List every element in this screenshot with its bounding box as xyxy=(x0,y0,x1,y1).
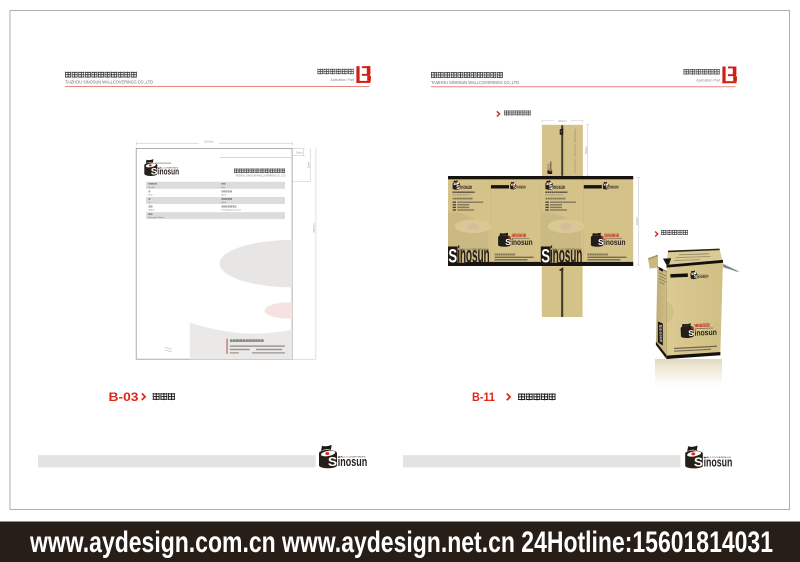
svg-text:inosun: inosun xyxy=(550,242,582,268)
svg-text:285mm: 285mm xyxy=(312,223,316,233)
svg-text:www.aydesign.com.cn www.aydesi: www.aydesign.com.cn www.aydesign.net.cn … xyxy=(29,526,773,559)
svg-text:200mm: 200mm xyxy=(558,119,567,123)
svg-text:10mm: 10mm xyxy=(296,153,302,155)
svg-text:inosun: inosun xyxy=(457,242,489,268)
svg-text:Sinosun: Sinosun xyxy=(658,324,664,343)
svg-text:Fax No: Fax No xyxy=(148,187,154,189)
svg-text:S: S xyxy=(448,246,457,267)
svg-text:Message To Read: Message To Read xyxy=(148,217,163,219)
svg-text:B-11: B-11 xyxy=(472,390,495,404)
svg-text:To: To xyxy=(148,202,150,204)
svg-text:Date: Date xyxy=(221,186,225,189)
svg-text:S: S xyxy=(541,246,550,267)
svg-text:Name: Name xyxy=(221,194,226,196)
svg-text:TAIZHOU SINOSUN WALLCOVERINGS: TAIZHOU SINOSUN WALLCOVERINGS CO.,LTD xyxy=(235,175,285,178)
svg-text:250mm: 250mm xyxy=(585,146,588,154)
svg-text:210mm: 210mm xyxy=(204,140,214,144)
svg-text:B-03: B-03 xyxy=(109,390,139,404)
svg-text:35mm: 35mm xyxy=(308,162,310,168)
svg-text:From: From xyxy=(148,193,153,196)
svg-text:Total Pages(incl.Cover): Total Pages(incl.Cover) xyxy=(221,209,241,212)
svg-text:420mm: 420mm xyxy=(636,217,639,225)
svg-text:Subject: Subject xyxy=(148,209,155,212)
svg-text:Name: Name xyxy=(221,202,226,204)
